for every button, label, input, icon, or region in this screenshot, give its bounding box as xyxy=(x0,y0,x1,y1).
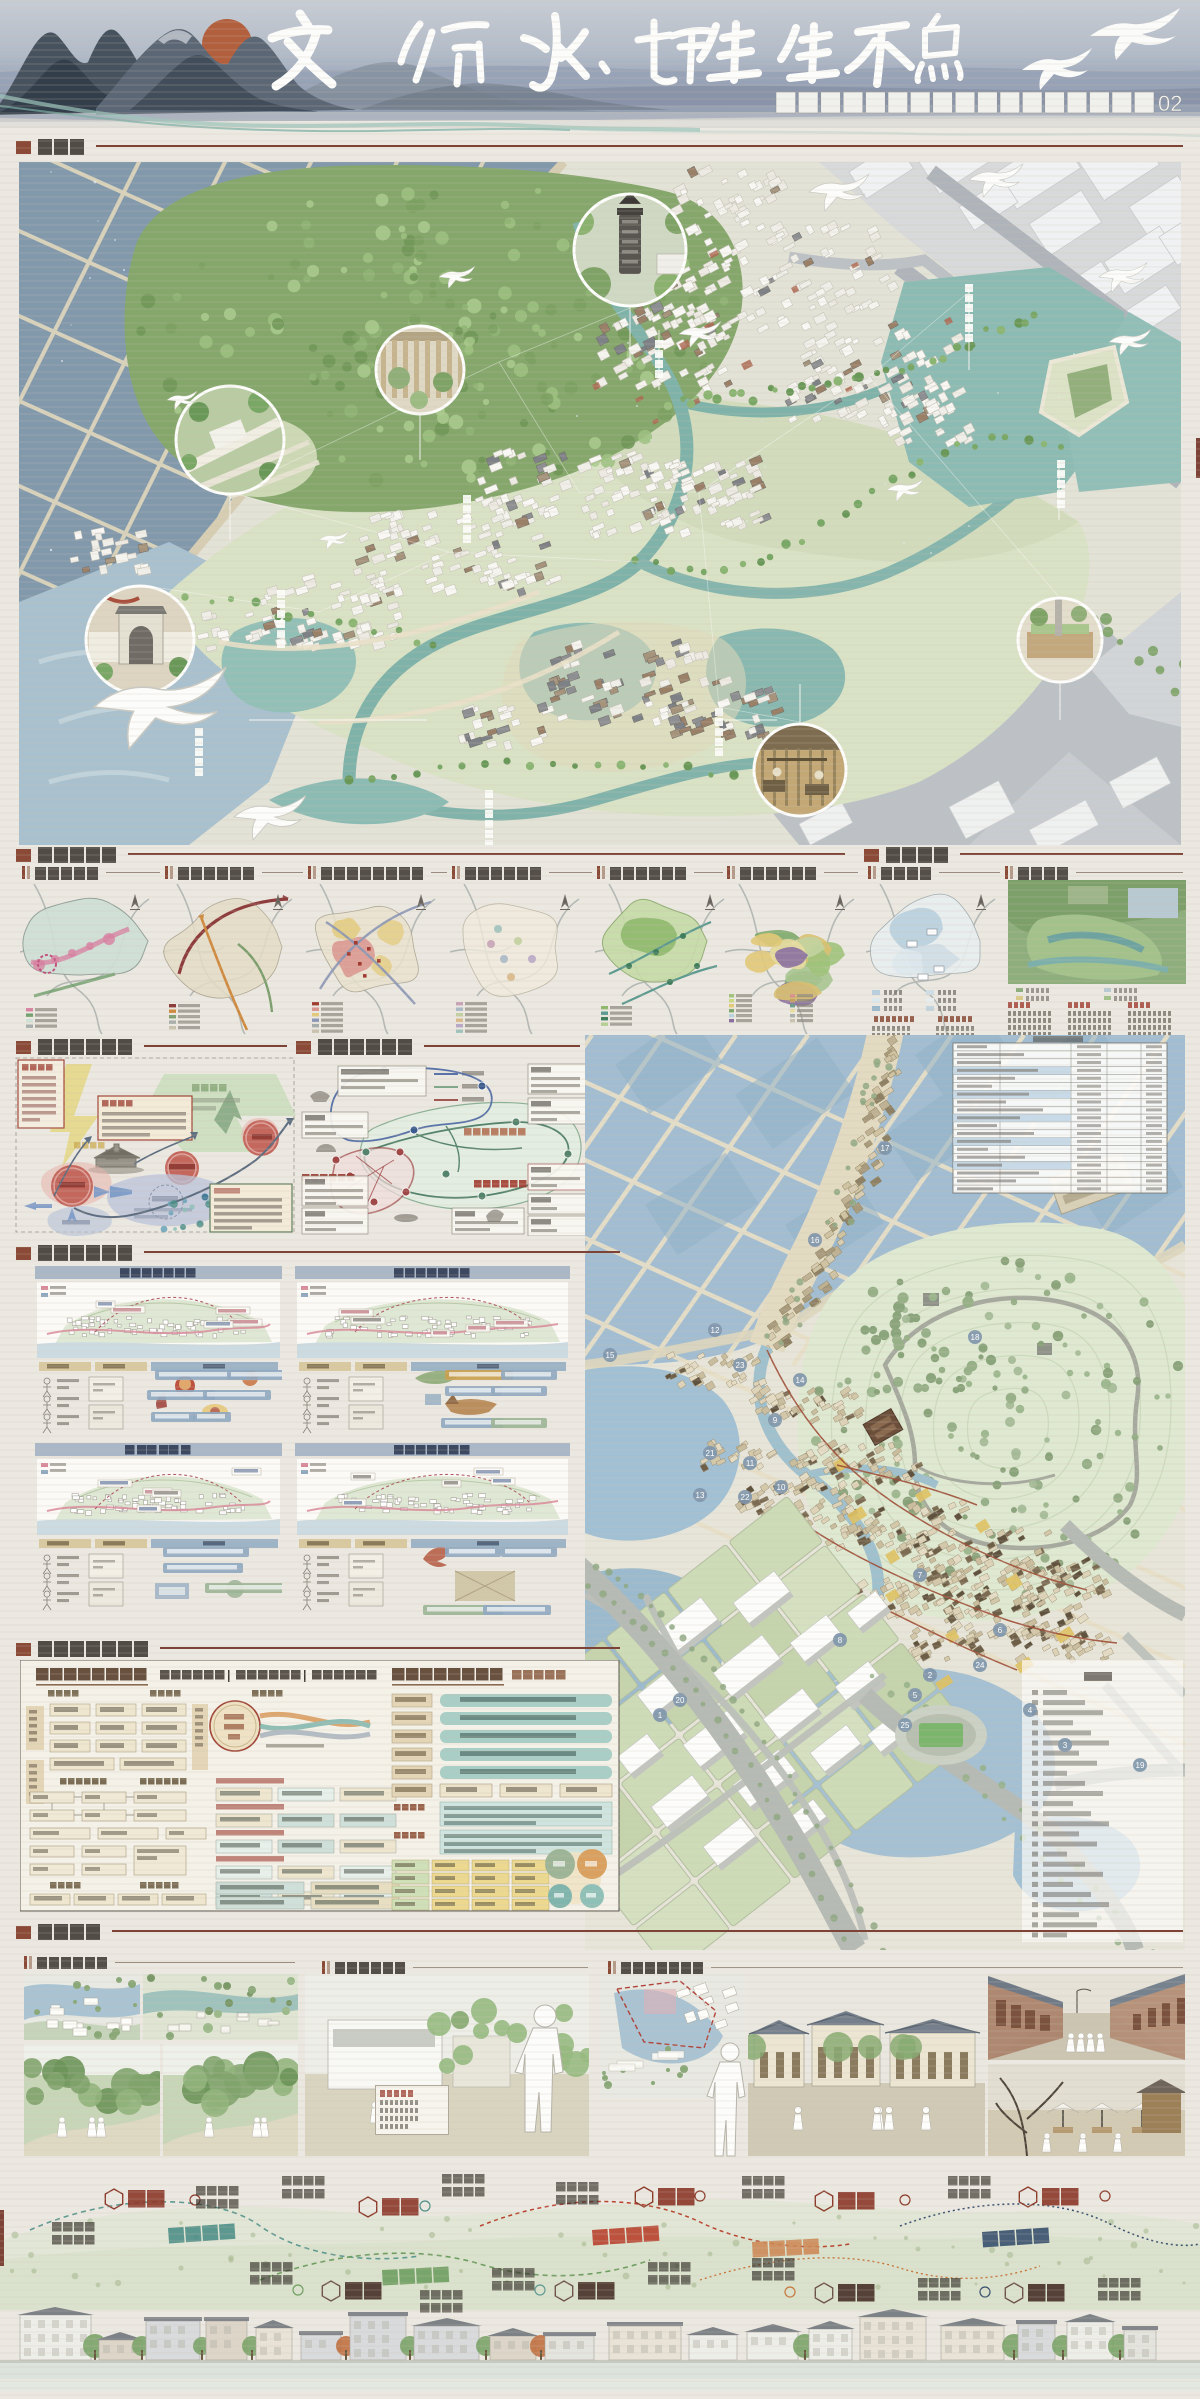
svg-text:21: 21 xyxy=(706,1449,715,1458)
svg-text:1: 1 xyxy=(658,1711,663,1720)
svg-text:16: 16 xyxy=(811,1236,820,1245)
svg-text:13: 13 xyxy=(696,1491,705,1500)
svg-text:18: 18 xyxy=(971,1333,980,1342)
svg-text:9: 9 xyxy=(773,1416,778,1425)
svg-text:25: 25 xyxy=(901,1721,910,1730)
svg-text:7: 7 xyxy=(918,1571,923,1580)
svg-text:17: 17 xyxy=(881,1144,890,1153)
svg-text:10: 10 xyxy=(777,1483,786,1492)
svg-text:4: 4 xyxy=(1028,1706,1033,1715)
svg-text:02: 02 xyxy=(1158,91,1182,116)
svg-text:11: 11 xyxy=(746,1459,755,1468)
svg-text:14: 14 xyxy=(796,1376,805,1385)
svg-text:22: 22 xyxy=(741,1493,750,1502)
svg-text:2: 2 xyxy=(928,1671,933,1680)
svg-text:12: 12 xyxy=(711,1326,720,1335)
svg-text:6: 6 xyxy=(998,1626,1003,1635)
svg-text:8: 8 xyxy=(838,1636,843,1645)
svg-text:24: 24 xyxy=(976,1661,985,1670)
svg-text:19: 19 xyxy=(1136,1761,1145,1770)
svg-text:15: 15 xyxy=(606,1351,615,1360)
svg-text:5: 5 xyxy=(913,1691,918,1700)
svg-text:23: 23 xyxy=(736,1361,745,1370)
svg-text:3: 3 xyxy=(1063,1741,1068,1750)
svg-text:20: 20 xyxy=(676,1696,685,1705)
